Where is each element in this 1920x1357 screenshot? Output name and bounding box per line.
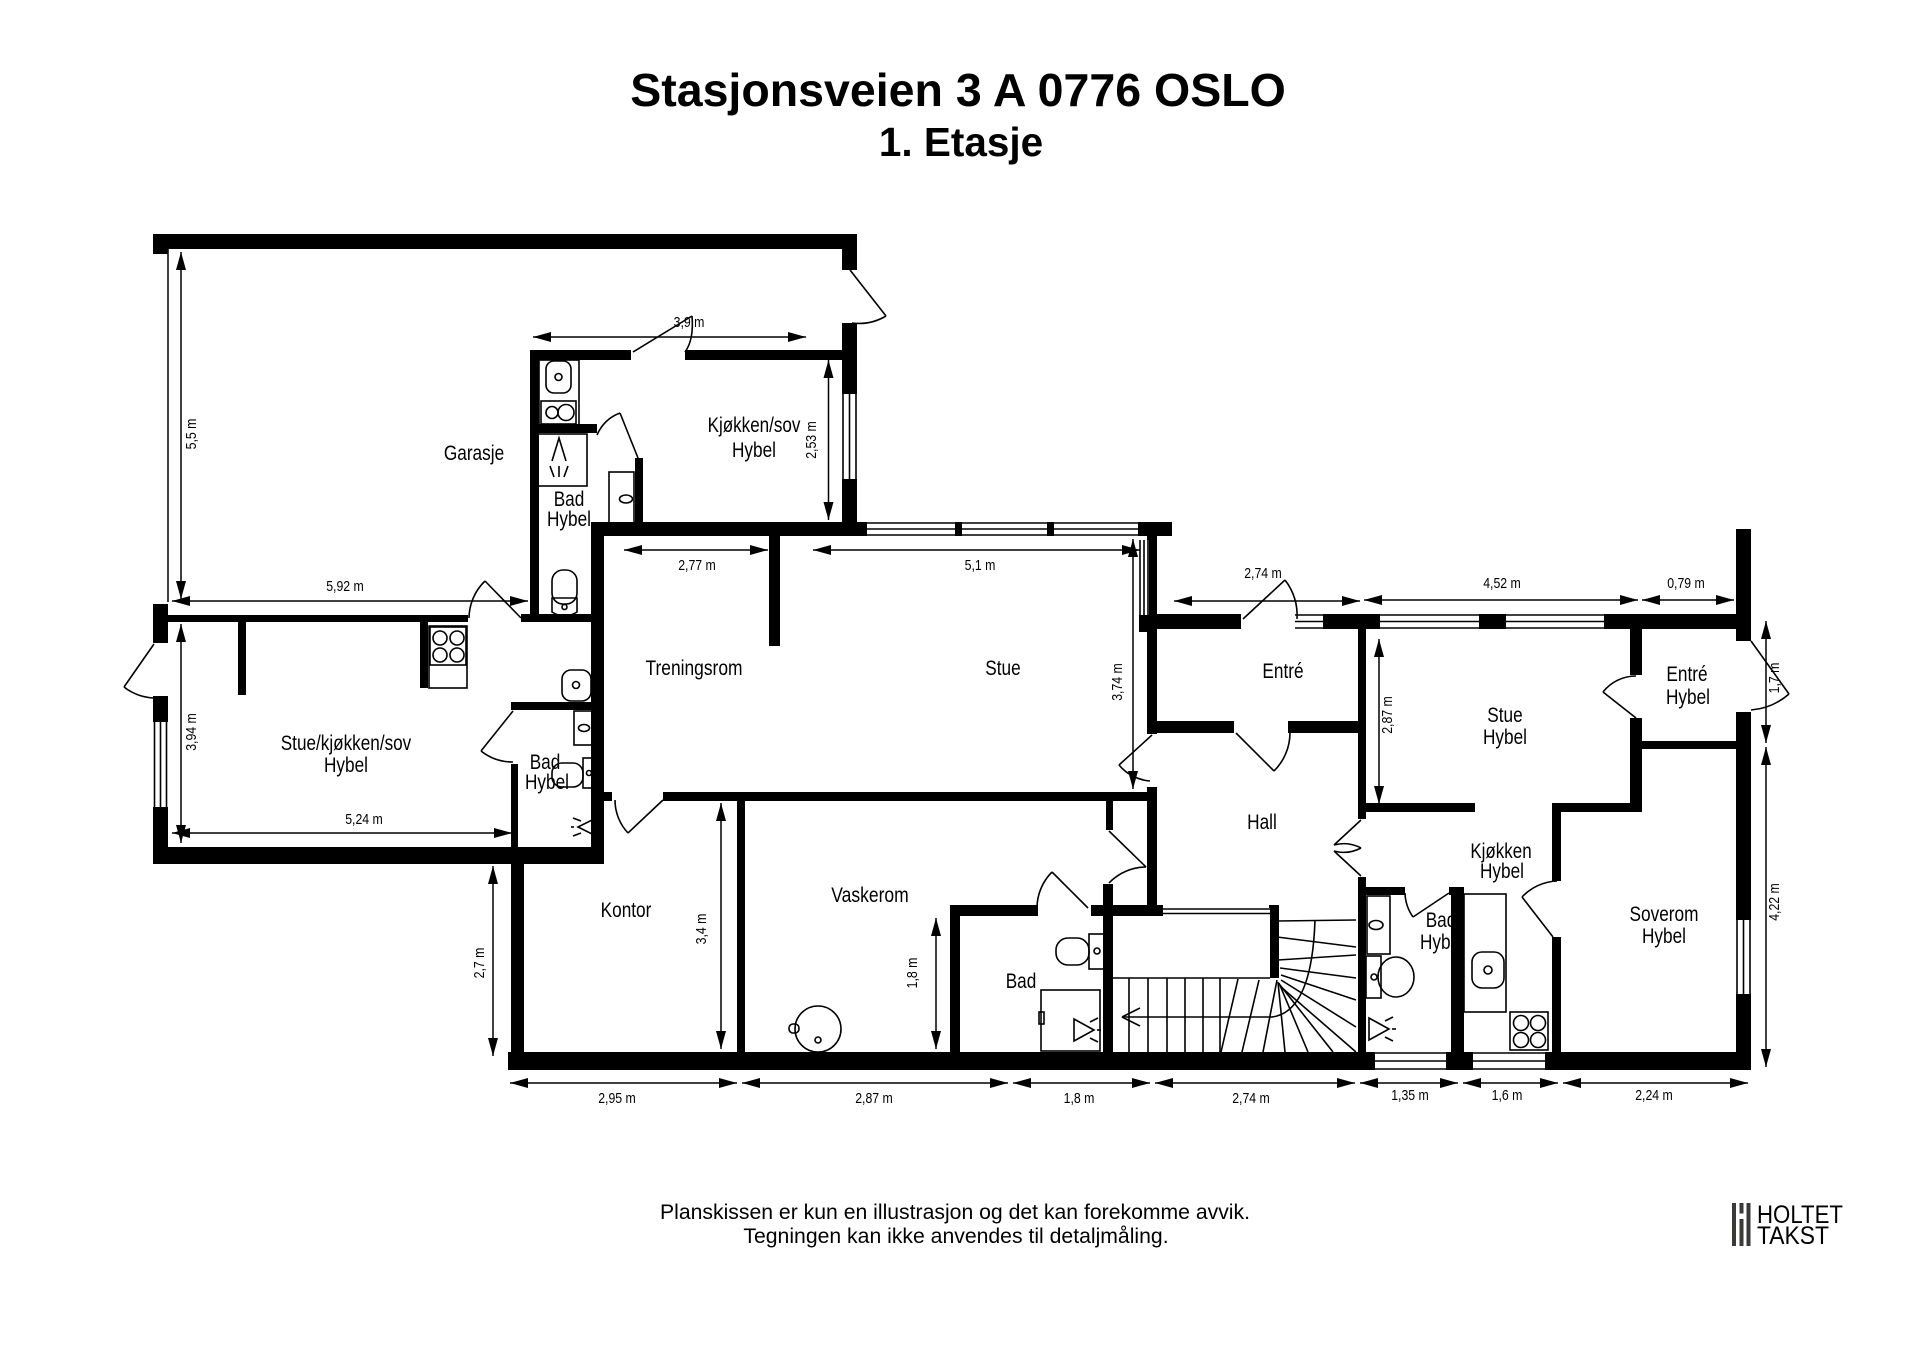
svg-text:1,6 m: 1,6 m <box>1492 1087 1523 1104</box>
svg-text:3,74 m: 3,74 m <box>1109 663 1126 701</box>
svg-text:Kjøkken/sov: Kjøkken/sov <box>708 414 801 437</box>
svg-text:2,95 m: 2,95 m <box>598 1090 636 1107</box>
svg-text:2,74 m: 2,74 m <box>1244 565 1282 582</box>
svg-text:1,8 m: 1,8 m <box>1064 1090 1095 1107</box>
svg-text:Entré: Entré <box>1262 660 1303 683</box>
svg-text:Kontor: Kontor <box>601 899 652 922</box>
svg-text:2,7 m: 2,7 m <box>471 948 488 979</box>
svg-text:5,24 m: 5,24 m <box>345 811 383 828</box>
svg-text:Stue/kjøkken/sov: Stue/kjøkken/sov <box>281 732 412 755</box>
svg-text:1,8 m: 1,8 m <box>904 958 921 989</box>
svg-text:5,5 m: 5,5 m <box>183 419 200 450</box>
svg-text:Vaskerom: Vaskerom <box>831 884 909 907</box>
svg-text:Hybel: Hybel <box>1420 931 1464 954</box>
svg-text:Bad: Bad <box>1426 909 1457 932</box>
svg-text:0,79 m: 0,79 m <box>1667 575 1705 592</box>
svg-text:1,7 m: 1,7 m <box>1766 663 1783 694</box>
svg-text:Planskissen er kun en illustra: Planskissen er kun en illustrasjon og de… <box>660 1201 1250 1224</box>
svg-text:Entré: Entré <box>1666 663 1707 686</box>
svg-text:3,9 m: 3,9 m <box>674 314 705 331</box>
svg-text:Garasje: Garasje <box>444 442 504 465</box>
svg-text:4,52 m: 4,52 m <box>1483 575 1521 592</box>
svg-text:Hybel: Hybel <box>1666 686 1710 709</box>
svg-text:2,74 m: 2,74 m <box>1232 1090 1270 1107</box>
svg-text:Treningsrom: Treningsrom <box>646 657 743 680</box>
svg-text:Hybel: Hybel <box>1642 925 1686 948</box>
svg-text:2,53 m: 2,53 m <box>803 421 820 459</box>
svg-text:5,92 m: 5,92 m <box>326 578 364 595</box>
svg-text:Hybel: Hybel <box>547 508 591 531</box>
svg-text:Tegningen kan ikke anvendes ti: Tegningen kan ikke anvendes til detaljmå… <box>743 1225 1168 1248</box>
svg-text:Stue: Stue <box>985 657 1020 680</box>
svg-text:Hybel: Hybel <box>732 439 776 462</box>
svg-text:Hybel: Hybel <box>1480 860 1524 883</box>
svg-text:2,24 m: 2,24 m <box>1635 1087 1673 1104</box>
svg-text:TAKST: TAKST <box>1757 1222 1829 1250</box>
svg-text:2,87 m: 2,87 m <box>1379 696 1396 734</box>
svg-text:3,4 m: 3,4 m <box>693 914 710 945</box>
svg-text:2,77 m: 2,77 m <box>678 557 716 574</box>
svg-text:3,94 m: 3,94 m <box>183 713 200 751</box>
svg-text:Hall: Hall <box>1247 811 1277 834</box>
svg-text:1. Etasje: 1. Etasje <box>879 119 1043 165</box>
svg-text:Bad: Bad <box>1006 970 1037 993</box>
svg-text:Stue: Stue <box>1487 704 1522 727</box>
svg-text:1,35 m: 1,35 m <box>1391 1087 1429 1104</box>
svg-text:5,1 m: 5,1 m <box>965 557 996 574</box>
svg-text:Soverom: Soverom <box>1630 903 1699 926</box>
svg-text:2,87 m: 2,87 m <box>855 1090 893 1107</box>
svg-text:4,22 m: 4,22 m <box>1766 883 1783 921</box>
svg-text:Hybel: Hybel <box>525 771 569 794</box>
svg-text:Hybel: Hybel <box>1483 726 1527 749</box>
svg-text:Stasjonsveien 3 A 0776 OSLO: Stasjonsveien 3 A 0776 OSLO <box>630 64 1286 116</box>
svg-text:Hybel: Hybel <box>324 754 368 777</box>
